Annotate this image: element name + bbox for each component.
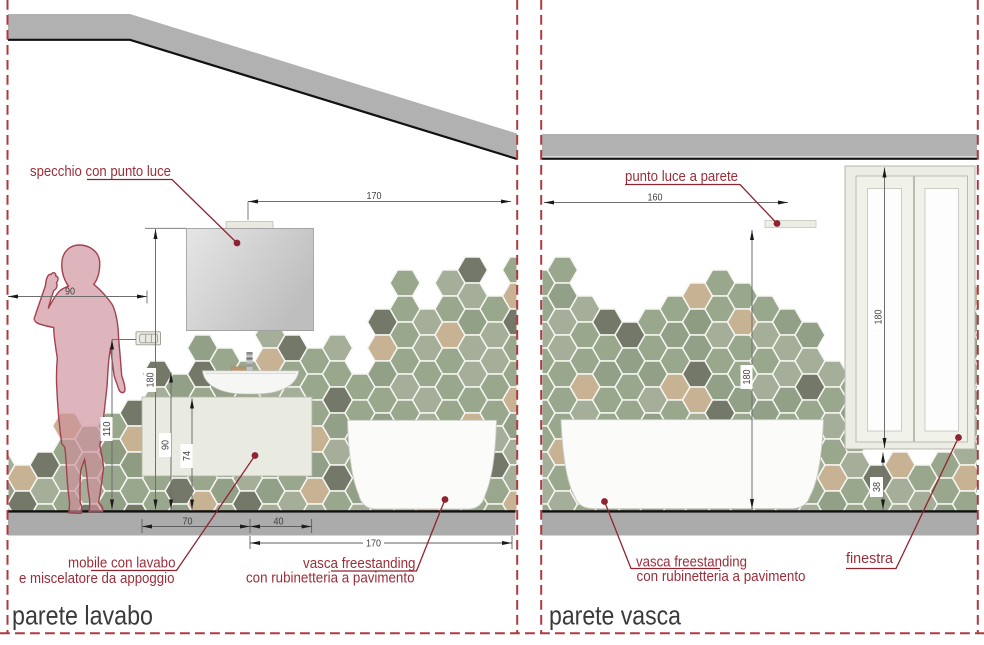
svg-text:170: 170 bbox=[366, 539, 381, 550]
svg-text:specchio con punto luce: specchio con punto luce bbox=[30, 163, 171, 180]
svg-text:e miscelatore da appoggio: e miscelatore da appoggio bbox=[19, 570, 175, 587]
svg-text:110: 110 bbox=[102, 421, 113, 436]
svg-text:180: 180 bbox=[874, 309, 885, 324]
svg-text:parete lavabo: parete lavabo bbox=[12, 601, 153, 631]
svg-text:160: 160 bbox=[648, 193, 663, 204]
svg-text:74: 74 bbox=[182, 451, 193, 461]
svg-text:con rubinetteria a pavimento: con rubinetteria a pavimento bbox=[637, 568, 806, 585]
svg-text:90: 90 bbox=[161, 440, 172, 450]
svg-text:90: 90 bbox=[65, 287, 75, 298]
svg-text:170: 170 bbox=[367, 191, 382, 202]
svg-text:40: 40 bbox=[274, 517, 284, 528]
svg-text:70: 70 bbox=[183, 517, 193, 528]
svg-text:180: 180 bbox=[146, 372, 157, 387]
svg-text:mobile con lavabo: mobile con lavabo bbox=[68, 555, 176, 572]
svg-text:finestra: finestra bbox=[846, 550, 894, 567]
svg-text:parete vasca: parete vasca bbox=[549, 601, 682, 631]
svg-text:180: 180 bbox=[742, 369, 753, 384]
svg-text:punto luce a parete: punto luce a parete bbox=[625, 168, 738, 185]
svg-text:con rubinetteria a pavimento: con rubinetteria a pavimento bbox=[246, 570, 415, 587]
svg-text:38: 38 bbox=[872, 482, 883, 492]
